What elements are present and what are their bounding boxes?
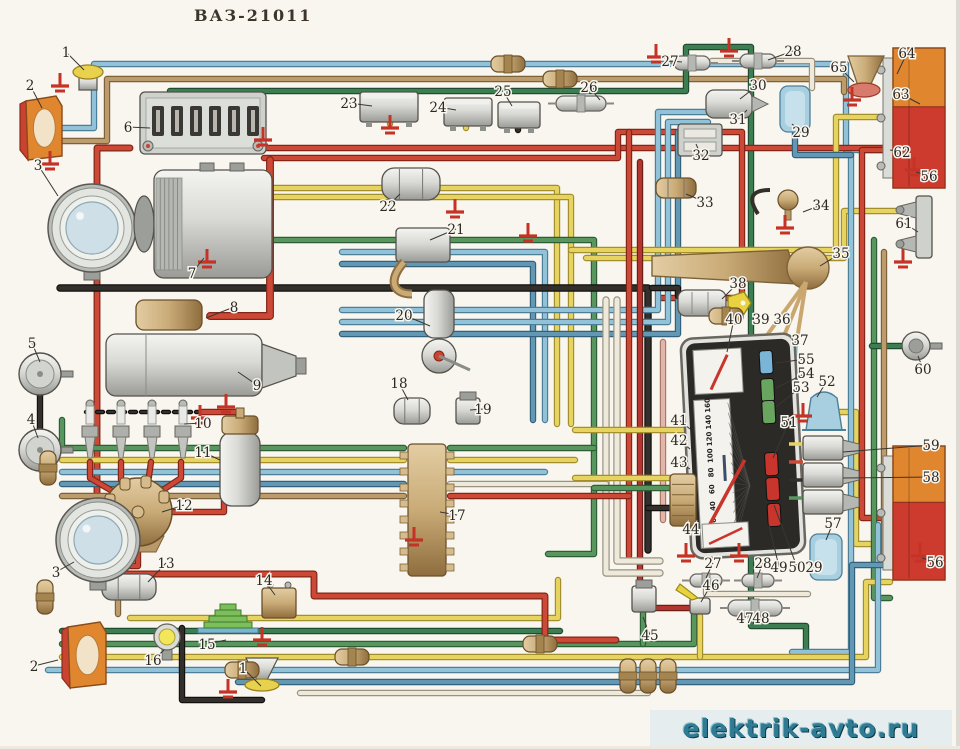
svg-text:52: 52 — [818, 374, 835, 390]
svg-text:38: 38 — [729, 276, 746, 292]
svg-text:62: 62 — [893, 145, 910, 161]
svg-text:2: 2 — [30, 659, 39, 675]
scan-edge-right — [956, 0, 960, 749]
svg-text:28: 28 — [754, 556, 771, 572]
svg-text:63: 63 — [892, 87, 909, 103]
svg-text:26: 26 — [580, 80, 597, 96]
svg-text:50: 50 — [788, 560, 805, 576]
svg-text:43: 43 — [670, 455, 687, 471]
callout-1: 1 — [62, 45, 84, 70]
svg-text:40: 40 — [725, 312, 742, 328]
callout-48: 48 — [752, 611, 769, 627]
wire-connector — [491, 55, 525, 73]
svg-text:29: 29 — [805, 560, 822, 576]
callout-29: 29 — [792, 124, 810, 141]
wire-connector — [39, 451, 57, 485]
svg-text:54: 54 — [797, 366, 814, 382]
svg-text:29: 29 — [792, 125, 809, 141]
svg-text:21: 21 — [447, 222, 464, 238]
svg-text:33: 33 — [696, 195, 713, 211]
svg-text:27: 27 — [704, 556, 721, 572]
svg-text:25: 25 — [494, 84, 511, 100]
wire-connector — [619, 659, 677, 693]
ground-symbol — [219, 679, 237, 697]
svg-text:65: 65 — [830, 60, 847, 76]
svg-text:30: 30 — [749, 78, 766, 94]
svg-text:15: 15 — [198, 637, 215, 653]
svg-text:34: 34 — [812, 198, 829, 214]
svg-text:48: 48 — [752, 611, 769, 627]
ignition-coil-11 — [220, 408, 260, 506]
callout-42: 42 — [670, 433, 690, 449]
relay-25 — [498, 102, 540, 133]
svg-text:140: 140 — [704, 415, 713, 430]
svg-text:58: 58 — [922, 470, 939, 486]
relay-34 — [752, 190, 798, 220]
svg-text:3: 3 — [34, 158, 43, 174]
callout-16: 16 — [144, 650, 164, 669]
svg-text:41: 41 — [670, 413, 687, 429]
svg-text:120: 120 — [705, 431, 714, 446]
wiring-diagram-page: 020406080100120140160 123678910111213141… — [0, 0, 960, 749]
svg-text:22: 22 — [379, 199, 396, 215]
svg-text:51: 51 — [780, 415, 797, 431]
svg-text:2: 2 — [26, 78, 35, 94]
wire-connector — [523, 635, 557, 653]
svg-text:5: 5 — [28, 336, 37, 352]
wire-connector — [543, 70, 577, 88]
svg-text:57: 57 — [824, 516, 841, 532]
svg-text:46: 46 — [702, 578, 719, 594]
wiring-diagram-canvas: 020406080100120140160 123678910111213141… — [0, 0, 960, 749]
svg-text:16: 16 — [144, 653, 161, 669]
ground-symbol — [446, 199, 464, 217]
diagram-title: ВАЗ-21011 — [194, 6, 312, 25]
svg-text:35: 35 — [832, 246, 849, 262]
svg-text:53: 53 — [792, 380, 809, 396]
callout-18: 18 — [390, 376, 408, 400]
relay-24 — [444, 98, 492, 131]
horn-5 — [19, 353, 73, 395]
svg-text:55: 55 — [797, 352, 814, 368]
svg-text:59: 59 — [922, 438, 939, 454]
callout-41: 41 — [670, 413, 690, 429]
svg-text:12: 12 — [175, 498, 192, 514]
svg-text:19: 19 — [474, 402, 491, 418]
callout-44: 44 — [682, 522, 699, 538]
callout-62: 62 — [890, 145, 911, 161]
svg-text:4: 4 — [27, 412, 36, 428]
svg-text:27: 27 — [661, 54, 678, 70]
svg-text:60: 60 — [708, 484, 717, 494]
callout-61: 61 — [895, 216, 918, 232]
ground-symbol — [894, 249, 912, 267]
svg-text:10: 10 — [194, 416, 211, 432]
fuse-box-6 — [140, 92, 266, 154]
svg-text:28: 28 — [784, 44, 801, 60]
svg-text:1: 1 — [62, 45, 71, 61]
callout-13: 13 — [148, 556, 175, 582]
svg-text:45: 45 — [641, 628, 658, 644]
svg-text:13: 13 — [157, 556, 174, 572]
svg-text:49: 49 — [770, 560, 787, 576]
washer-21 — [394, 228, 450, 294]
motor-22 — [382, 168, 440, 200]
svg-text:31: 31 — [729, 112, 746, 128]
callout-29: 29 — [805, 560, 822, 576]
svg-text:47: 47 — [736, 611, 753, 627]
svg-text:14: 14 — [255, 573, 272, 589]
svg-text:9: 9 — [253, 378, 262, 394]
svg-text:17: 17 — [448, 508, 465, 524]
svg-text:42: 42 — [670, 433, 687, 449]
sensor-45 — [632, 580, 656, 612]
callout-31: 31 — [729, 110, 747, 128]
svg-text:39: 39 — [752, 312, 769, 328]
svg-text:23: 23 — [340, 96, 357, 112]
watermark-text: elektrik-avto.ru — [650, 710, 952, 746]
starter-8-9 — [106, 300, 306, 396]
svg-text:44: 44 — [682, 522, 699, 538]
svg-text:18: 18 — [390, 376, 407, 392]
connector-44 — [670, 474, 696, 526]
svg-text:20: 20 — [395, 308, 412, 324]
headlight-3-top — [48, 184, 136, 280]
svg-text:11: 11 — [194, 445, 211, 461]
svg-text:64: 64 — [898, 46, 915, 62]
svg-text:56: 56 — [926, 555, 943, 571]
svg-text:160: 160 — [703, 398, 712, 413]
svg-text:36: 36 — [773, 312, 790, 328]
callout-47: 47 — [736, 611, 753, 627]
svg-text:61: 61 — [895, 216, 912, 232]
horn-1-top — [73, 65, 103, 90]
speaker-60 — [902, 332, 942, 360]
connector-17 — [400, 444, 454, 576]
svg-text:80: 80 — [707, 467, 716, 477]
callout-43: 43 — [670, 455, 690, 471]
callout-39: 39 — [752, 312, 769, 328]
callout-34: 34 — [803, 198, 830, 214]
callout-36: 36 — [773, 312, 790, 328]
svg-text:60: 60 — [914, 362, 931, 378]
wire-connector — [36, 580, 54, 614]
svg-text:37: 37 — [791, 333, 808, 349]
svg-text:8: 8 — [230, 300, 239, 316]
relay-18 — [394, 398, 430, 424]
svg-text:3: 3 — [52, 565, 61, 581]
svg-text:1: 1 — [239, 661, 248, 677]
dome-lamp-52 — [802, 392, 846, 430]
callout-37: 37 — [791, 333, 808, 349]
svg-text:32: 32 — [692, 148, 709, 164]
wire-y — [266, 188, 557, 424]
turn-signal-2-bottom — [62, 622, 106, 688]
ground-symbol — [51, 73, 69, 91]
svg-text:56: 56 — [920, 169, 937, 185]
wire-r — [160, 462, 181, 492]
tail-light-63-top — [877, 48, 945, 188]
svg-text:24: 24 — [429, 100, 446, 116]
svg-text:7: 7 — [188, 266, 197, 282]
wire-connector — [335, 648, 369, 666]
switch-33 — [656, 178, 696, 198]
fuse-26 — [548, 95, 614, 112]
svg-text:6: 6 — [124, 120, 133, 136]
svg-text:100: 100 — [706, 448, 715, 463]
